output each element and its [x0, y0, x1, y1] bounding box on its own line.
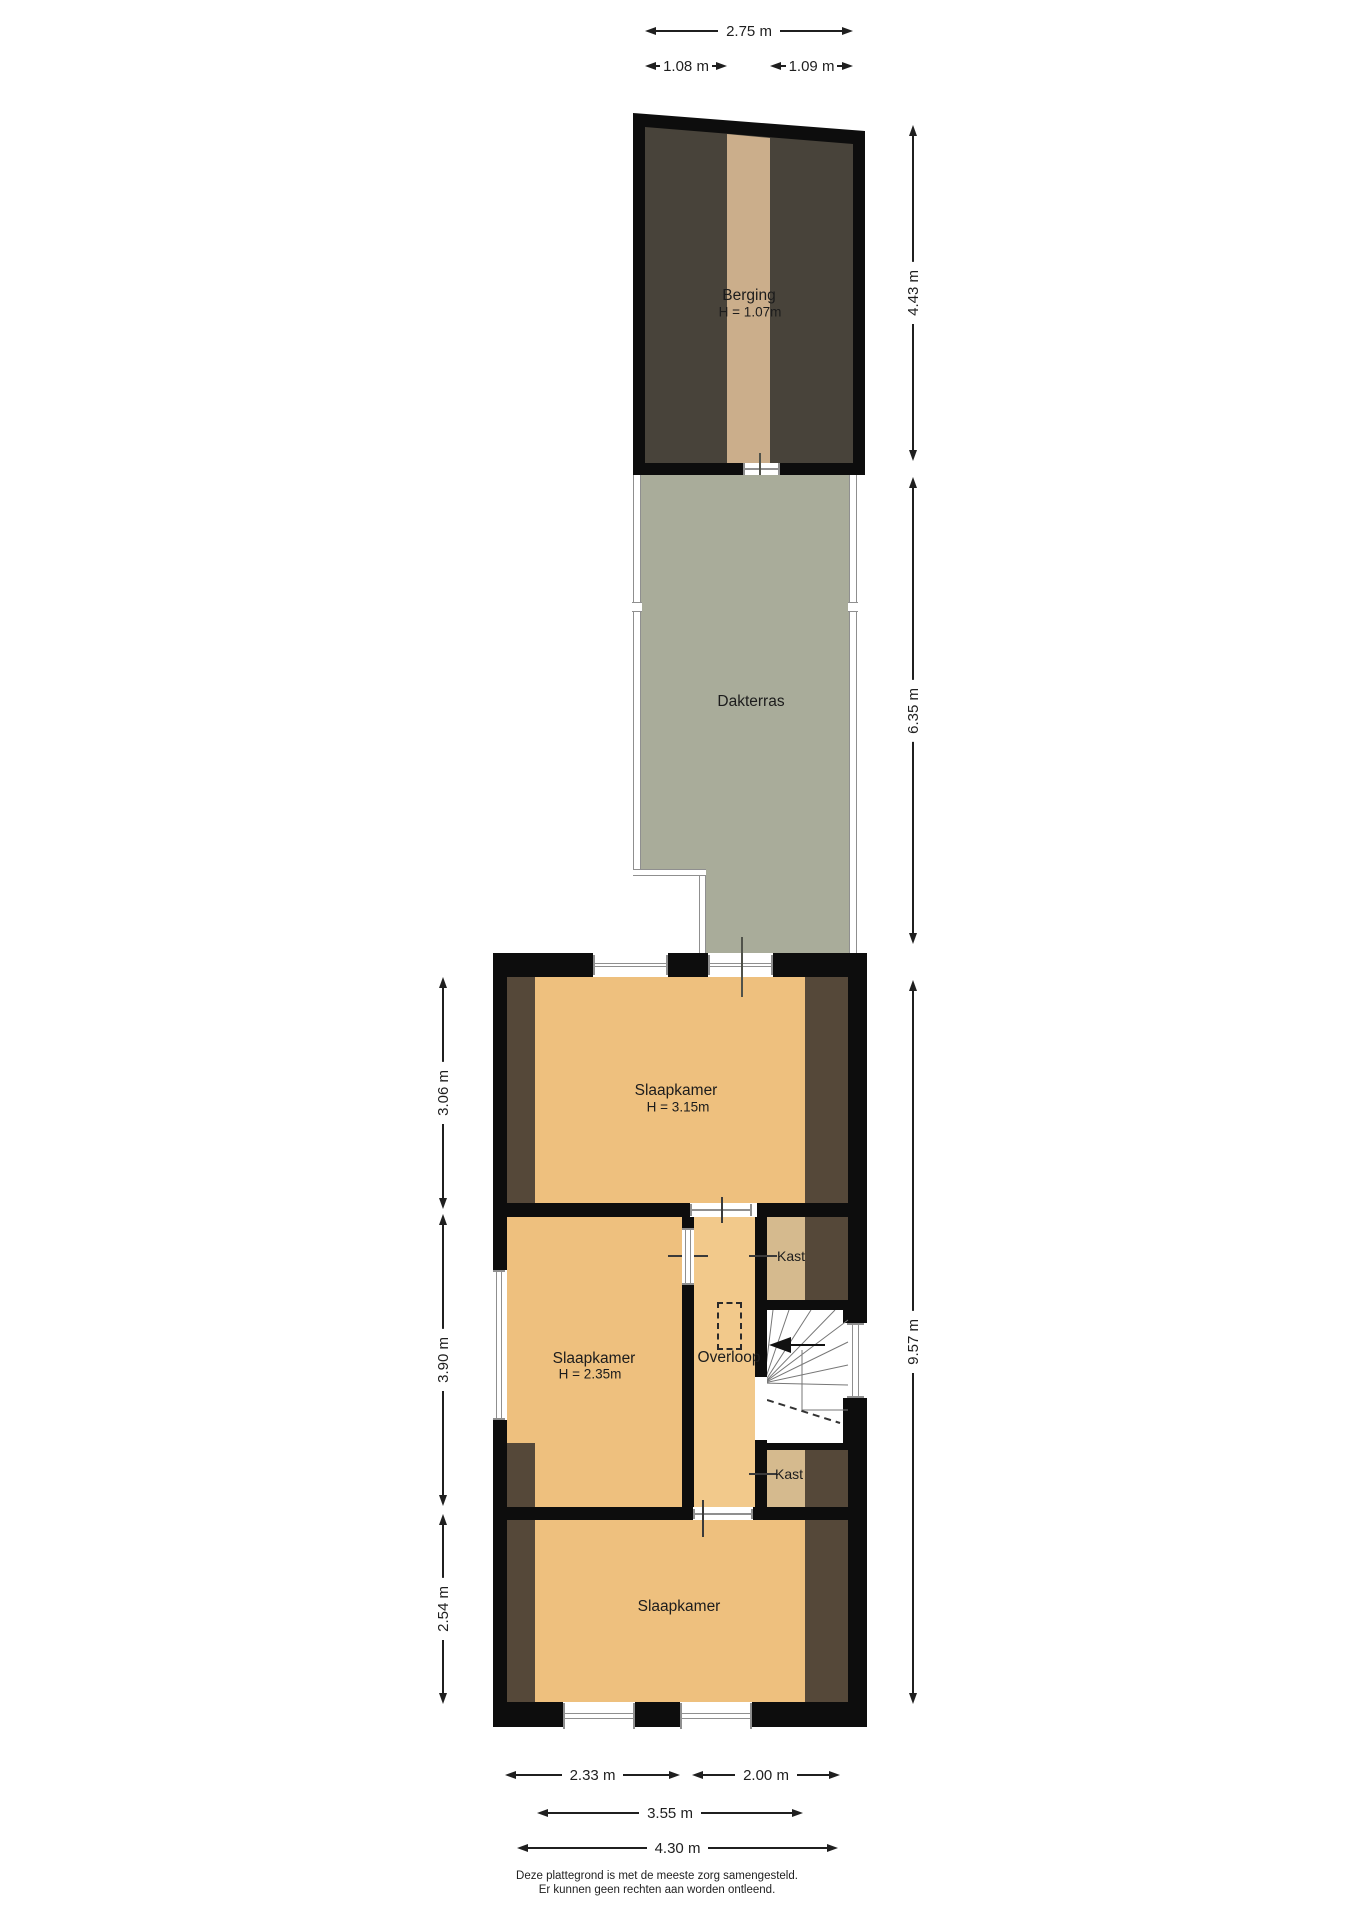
overloop-label: Overloop: [698, 1349, 761, 1367]
kast-boven-door-line: [749, 1255, 777, 1257]
wall: [753, 1507, 867, 1520]
roof-beam: [805, 977, 848, 1203]
dim-right-verdieping: 9.57 m: [905, 980, 921, 1704]
dim-label: 3.90 m: [435, 1329, 452, 1391]
railing-joint-right: [848, 602, 858, 612]
attic-hatch: [717, 1302, 742, 1350]
wall: [493, 1702, 563, 1727]
kast-boven-label: Kast: [777, 1248, 805, 1264]
floorplan-page: Berging H = 1.07m Dakterras: [0, 0, 1358, 1920]
window-bottom-right: [680, 1703, 752, 1729]
dim-top-left: 1.08 m: [645, 58, 727, 74]
wall: [757, 1203, 867, 1217]
dim-right-berging: 4.43 m: [905, 125, 921, 461]
dakterras-floor-upper: [641, 475, 849, 872]
roof-beam: [507, 977, 535, 1203]
dim-label: 2.33 m: [562, 1767, 624, 1784]
dim-label: 3.06 m: [435, 1062, 452, 1124]
door-line-onder: [702, 1500, 704, 1537]
wall: [682, 1217, 694, 1228]
dim-label: 9.57 m: [905, 1311, 922, 1373]
dakterras-label: Dakterras: [717, 693, 784, 711]
roof-beam: [805, 1450, 848, 1507]
berging-height-label: H = 1.07m: [719, 305, 782, 320]
wall: [668, 953, 708, 977]
slaapkamer-boven-label: Slaapkamer: [635, 1082, 718, 1100]
dim-left-boven: 3.06 m: [435, 977, 451, 1209]
berging-door-threshold: [743, 463, 780, 475]
roof-beam: [805, 1217, 848, 1300]
slaapkamer-boven-height: H = 3.15m: [647, 1100, 710, 1115]
stairs-direction-arrow: [769, 1337, 791, 1353]
dim-bottom-kamer-rechts: 2.00 m: [692, 1767, 840, 1783]
wall: [755, 1443, 867, 1450]
roof-beam: [507, 1520, 535, 1702]
dim-label: 1.08 m: [660, 58, 712, 75]
disclaimer-line2: Er kunnen geen rechten aan worden ontlee…: [516, 1883, 798, 1897]
disclaimer-line1: Deze plattegrond is met de meeste zorg s…: [516, 1869, 798, 1883]
door-slaapkamer-midden: [682, 1228, 694, 1285]
dim-bottom-binnen: 3.55 m: [537, 1805, 803, 1821]
wall: [752, 1702, 867, 1727]
roof-beam: [805, 1520, 848, 1702]
dim-top-total: 2.75 m: [645, 23, 853, 39]
slaapkamer-midden-label: Slaapkamer: [553, 1350, 636, 1368]
window-left: [493, 1270, 505, 1420]
wall: [848, 953, 867, 1323]
dakterras-notch-edge-h: [633, 869, 706, 876]
wall: [682, 1285, 694, 1507]
stairs: [767, 1310, 849, 1443]
dim-label: 6.35 m: [905, 680, 922, 742]
berging-label: Berging: [722, 287, 775, 305]
window-bottom-left: [563, 1703, 635, 1729]
kast-onder-label: Kast: [775, 1466, 803, 1482]
window-top: [593, 955, 668, 975]
window-stairs: [847, 1323, 864, 1398]
dim-left-onder: 2.54 m: [435, 1514, 451, 1704]
wall: [493, 953, 507, 1270]
dakterras-railing-left: [633, 475, 641, 874]
wall: [493, 1203, 690, 1217]
dim-right-dakterras: 6.35 m: [905, 477, 921, 944]
dim-left-midden: 3.90 m: [435, 1214, 451, 1506]
dim-label: 3.55 m: [639, 1805, 701, 1822]
dim-label: 2.75 m: [718, 23, 780, 40]
dim-label: 2.00 m: [735, 1767, 797, 1784]
dim-bottom-kamer-links: 2.33 m: [505, 1767, 680, 1783]
slaapkamer-midden-height: H = 2.35m: [559, 1367, 622, 1382]
dim-label: 4.30 m: [647, 1840, 709, 1857]
wall: [493, 1507, 693, 1520]
stairs-opening: [755, 1377, 767, 1440]
roof-beam: [507, 1443, 535, 1507]
dim-top-right: 1.09 m: [770, 58, 853, 74]
terrace-door-line: [741, 937, 743, 997]
dakterras-floor-lower: [706, 872, 849, 953]
opening-tick: [721, 1197, 723, 1223]
dim-label: 1.09 m: [786, 58, 838, 75]
dim-bottom-totaal: 4.30 m: [517, 1840, 838, 1856]
wall: [635, 1702, 680, 1727]
slaapkamer-onder-label: Slaapkamer: [638, 1598, 721, 1616]
wall: [493, 953, 593, 977]
dakterras-notch-edge-v: [699, 876, 706, 953]
door-tick: [694, 1255, 708, 1257]
dakterras-railing-right: [849, 475, 857, 953]
wall: [493, 1420, 507, 1727]
dim-label: 2.54 m: [435, 1578, 452, 1640]
door-tick: [668, 1255, 682, 1257]
dim-label: 4.43 m: [905, 262, 922, 324]
railing-joint-left: [632, 602, 642, 612]
kast-onder-door-line: [749, 1473, 777, 1475]
wall: [755, 1300, 867, 1310]
disclaimer: Deze plattegrond is met de meeste zorg s…: [516, 1869, 798, 1897]
